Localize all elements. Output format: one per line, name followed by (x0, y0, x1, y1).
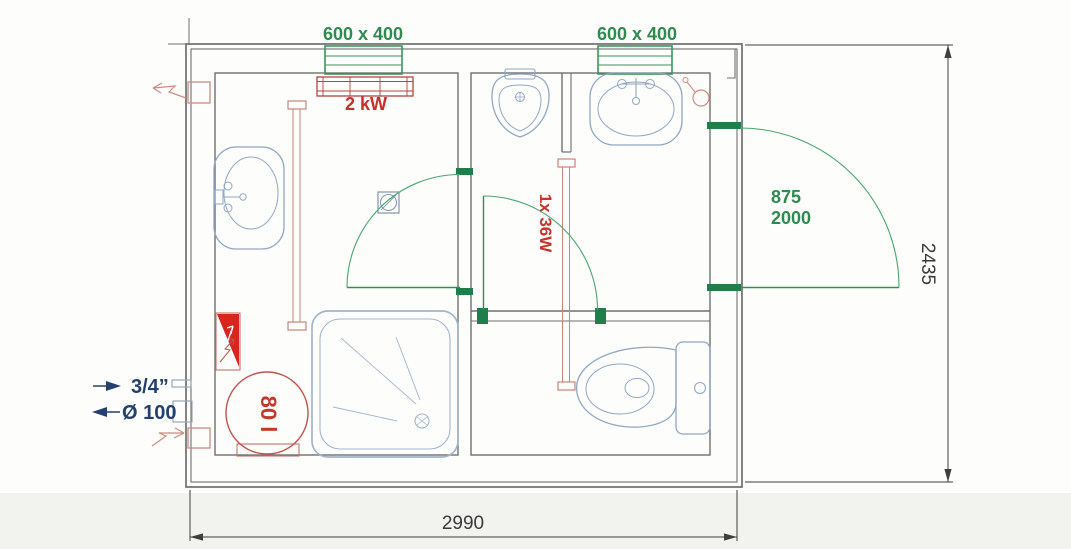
entry-door-width-label: 875 (771, 187, 801, 207)
wc-door-jamb-right (595, 308, 606, 324)
heater-power-label: 2 kW (345, 94, 387, 114)
height-dimension-label: 2435 (917, 243, 938, 285)
boiler-volume-label: 80 l (256, 396, 281, 433)
entry-door-jamb-bottom (707, 284, 741, 291)
sewage-connection-label: Ø 100 (122, 402, 176, 424)
background (0, 0, 1071, 549)
entry-door-jamb-top (707, 122, 741, 129)
entry-door-height-label: 2000 (771, 208, 811, 228)
background-lower-band (0, 493, 1071, 549)
window-right-size-label: 600 x 400 (597, 24, 677, 44)
wc-door-jamb-left (477, 308, 488, 324)
window-left-size-label: 600 x 400 (323, 24, 403, 44)
light-power-label: 1x 36W (536, 194, 555, 254)
interior-door-jamb-top (456, 168, 473, 175)
floor-plan: 2990 2435 600 x 400 600 x 400 2 kW (0, 0, 1071, 549)
interior-door-jamb-bottom (456, 288, 473, 295)
floor-plan-drawing: 2990 2435 600 x 400 600 x 400 2 kW (0, 0, 1071, 549)
water-connection-label: 3/4” (131, 376, 169, 398)
width-dimension-label: 2990 (442, 513, 484, 534)
